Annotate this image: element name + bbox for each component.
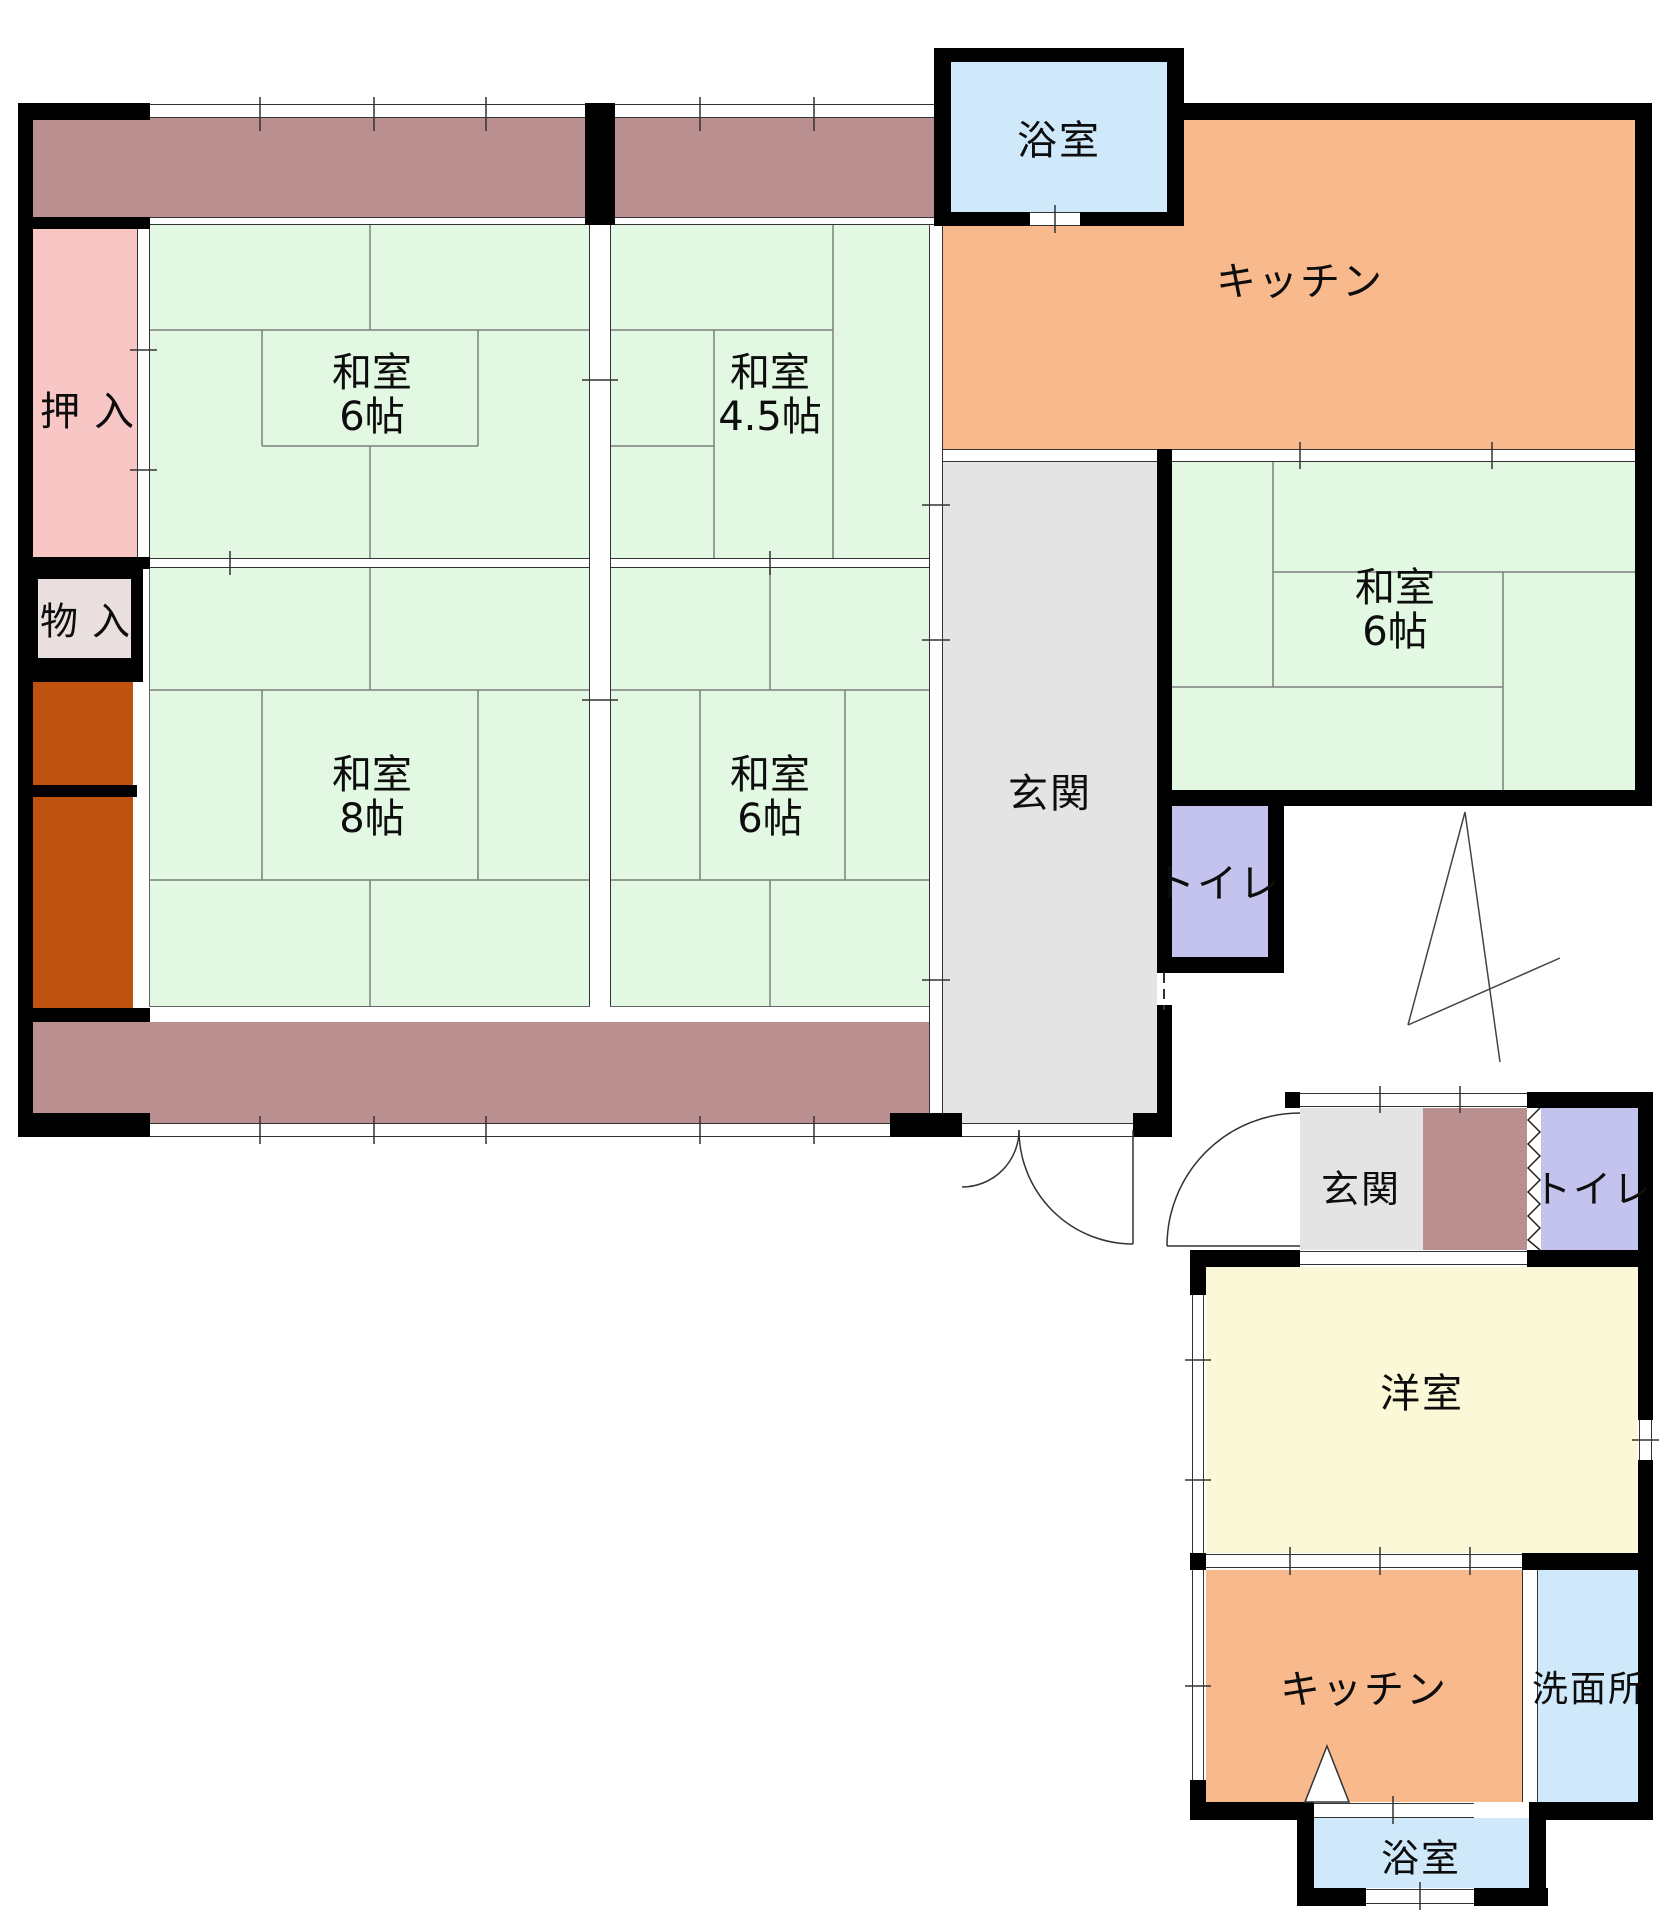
north-mark <box>1408 812 1560 1062</box>
wall-bottom-right-corner <box>890 1113 962 1137</box>
wall-annex-kitchen-left-corner <box>1190 1780 1206 1820</box>
window-annex-bath-bottom <box>1366 1889 1474 1904</box>
room-alcove-lower <box>32 797 133 1008</box>
wall-annex-bottom-right <box>1546 1802 1653 1820</box>
wall-washitsu-east-bottom <box>1157 790 1652 806</box>
window-annex-strip-top <box>1300 1093 1527 1107</box>
wall-genkan-left <box>929 226 943 1137</box>
wall-annex-western-left-corner <box>1190 1250 1206 1295</box>
wall-alcove-divider <box>26 785 137 797</box>
room-alcove-upper <box>32 682 133 785</box>
window-annex-right <box>1639 1420 1652 1460</box>
window-annex-western-bottom <box>1206 1554 1522 1568</box>
wall-annex-strip-top-left <box>1285 1092 1300 1108</box>
wall-bath-main-top <box>934 48 1184 62</box>
wall-right-outer-main <box>1635 103 1652 806</box>
wall-annex-western-top-left <box>1190 1250 1300 1267</box>
wall-tatami-column-divider <box>589 225 611 1006</box>
wall-annex-bath-bottom-left <box>1297 1888 1366 1906</box>
label-kitchen-main: キッチン <box>1216 249 1384 307</box>
room-veranda-bottom <box>33 1022 929 1123</box>
wall-bath-main-bottom-left <box>934 212 1030 226</box>
wall-alcove-bottom <box>18 1008 150 1022</box>
label-washroom-annex: 洗面所 <box>1532 1660 1646 1712</box>
door-opening-genkan-main <box>962 1123 1133 1137</box>
wall-oshiire-top <box>26 217 150 229</box>
wall-bath-main-right <box>1167 48 1184 226</box>
wall-annex-bottom-left <box>1190 1802 1314 1820</box>
label-monoire: 物入 <box>26 591 144 646</box>
wall-bottom-left-corner <box>18 1113 150 1137</box>
label-toilet-main: トイレ <box>1155 851 1281 909</box>
label-genkan-annex: 玄関 <box>1321 1159 1401 1214</box>
line-bottom-wall <box>33 1123 890 1137</box>
wall-veranda-column <box>585 103 615 225</box>
wall-oshiire-bottom <box>26 557 150 569</box>
wall-annex-right-lower <box>1638 1460 1653 1820</box>
wall-tatami-row-divider <box>150 558 929 568</box>
wall-top-left-corner <box>18 103 150 120</box>
wall-annex-western-top-right <box>1527 1250 1653 1267</box>
wall-annex-western-bottom-left <box>1190 1553 1206 1570</box>
floor-plan: 押入 物入 浴室 キッチン 和室 6帖 和室 4.5帖 和室 8帖 和室 6帖 … <box>0 0 1671 1920</box>
room-annex-entry-closet <box>1423 1108 1527 1250</box>
wall-bath-main-left <box>934 48 951 226</box>
wall-toilet-main-bottom <box>1157 957 1284 973</box>
label-kitchen-annex: キッチン <box>1280 1657 1448 1715</box>
wall-bath-main-bottom-right <box>1080 212 1167 226</box>
label-bath-annex: 浴室 <box>1381 1828 1461 1883</box>
wall-kitchen-top <box>1184 103 1652 120</box>
window-top-wall <box>150 104 934 118</box>
line-veranda-top-bottom <box>33 217 934 225</box>
label-toilet-annex: トイレ <box>1533 1159 1653 1214</box>
wall-annex-strip-top-right <box>1527 1092 1653 1108</box>
wall-annex-western-bottom-right <box>1522 1553 1653 1570</box>
window-annex-kitchen-left <box>1192 1570 1204 1802</box>
label-western-annex: 洋室 <box>1380 1361 1464 1419</box>
label-washitsu-ne: 和室 4.5帖 <box>718 351 822 439</box>
opening-annex-western-top <box>1300 1251 1527 1265</box>
wall-genkan-right-lower <box>1157 1005 1172 1137</box>
window-kitchen-bottom <box>943 449 1635 462</box>
label-washitsu-se: 和室 6帖 <box>730 753 810 841</box>
window-annex-western-left <box>1192 1295 1204 1553</box>
label-washitsu-nw: 和室 6帖 <box>332 351 412 439</box>
wall-monoire-bottom <box>30 668 143 682</box>
label-oshiire: 押入 <box>26 379 148 437</box>
label-bath-main: 浴室 <box>1017 108 1101 166</box>
label-washitsu-sw: 和室 8帖 <box>332 753 412 841</box>
room-veranda-top <box>33 115 934 217</box>
label-washitsu-east: 和室 6帖 <box>1355 566 1435 654</box>
opening-annex-kitchen-bath <box>1314 1803 1474 1818</box>
door-gap-bath-main <box>1030 212 1080 226</box>
label-genkan-main: 玄関 <box>1008 761 1092 819</box>
room-kitchen-main-lower <box>943 226 1184 449</box>
wall-annex-bath-bottom-right <box>1474 1888 1548 1906</box>
